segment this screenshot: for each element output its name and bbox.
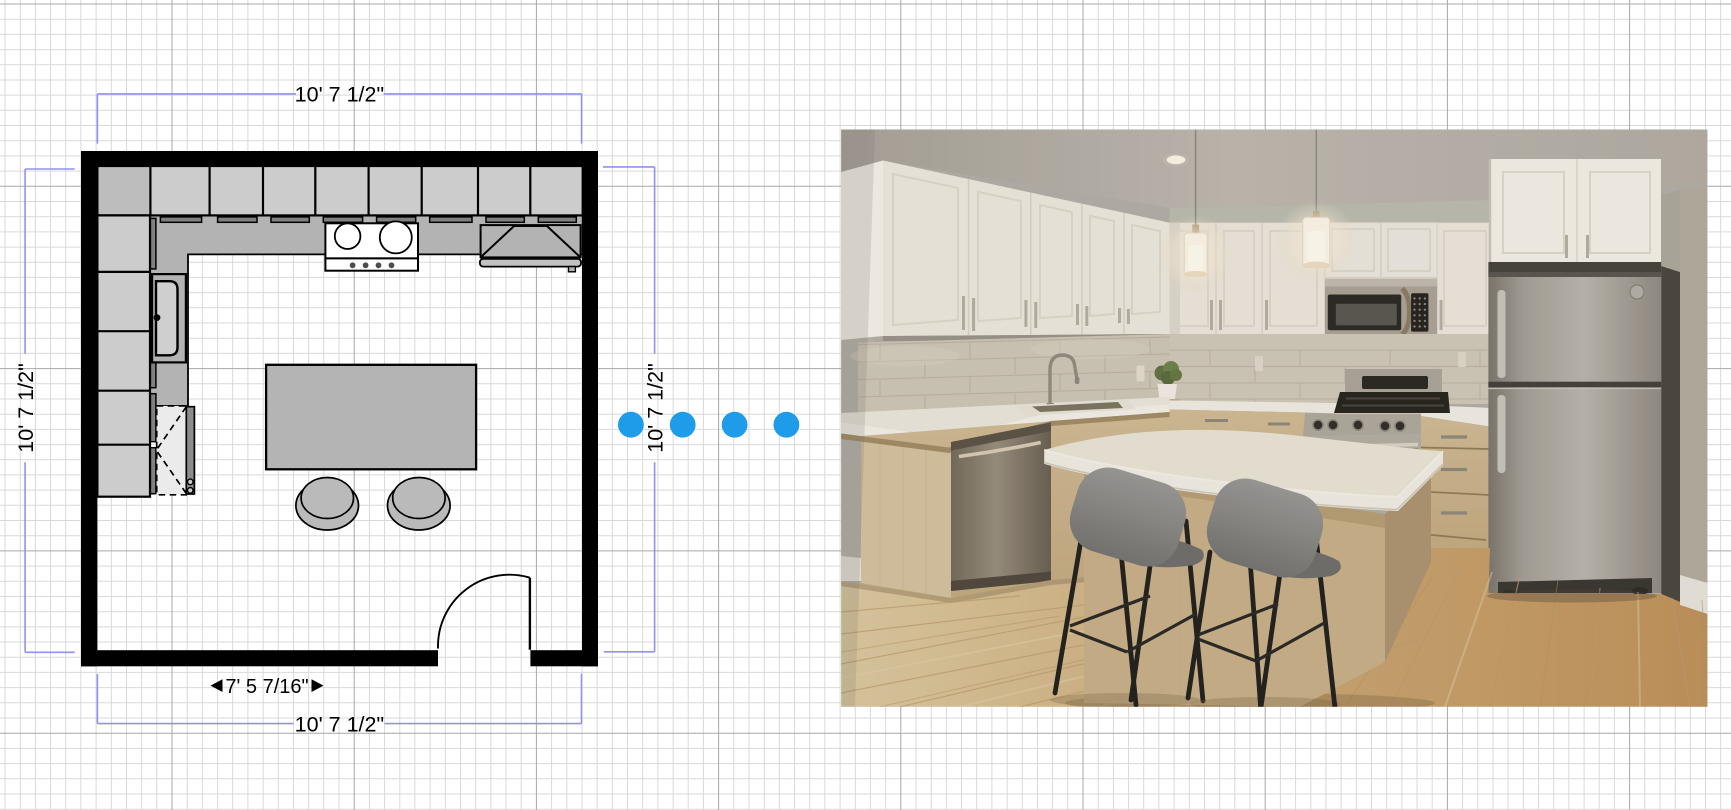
svg-text:10' 7 1/2": 10' 7 1/2" <box>14 363 38 452</box>
svg-text:10' 7 1/2": 10' 7 1/2" <box>643 363 667 452</box>
svg-text:10' 7 1/2": 10' 7 1/2" <box>295 83 384 107</box>
svg-text:7' 5 7/16": 7' 5 7/16" <box>225 676 308 698</box>
svg-text:10' 7 1/2": 10' 7 1/2" <box>295 712 384 736</box>
